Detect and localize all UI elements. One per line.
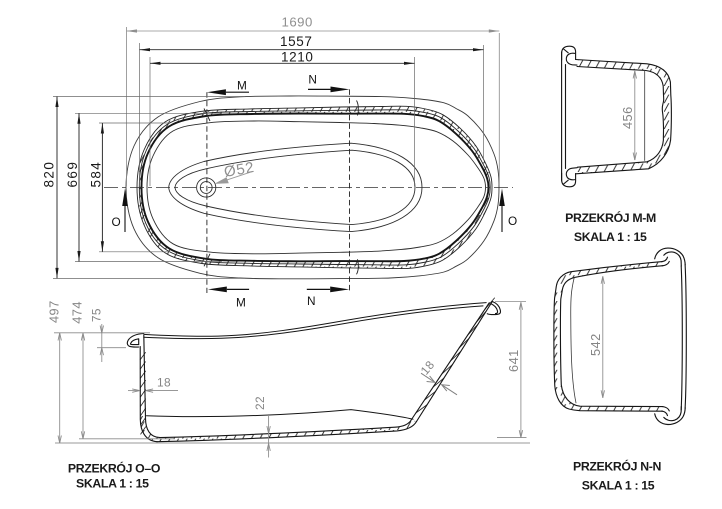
svg-text:641: 641 <box>506 349 521 372</box>
svg-text:O: O <box>112 215 121 229</box>
svg-text:1690: 1690 <box>282 15 313 30</box>
svg-text:75: 75 <box>89 308 103 322</box>
svg-text:474: 474 <box>69 301 84 324</box>
svg-text:O: O <box>508 214 517 228</box>
svg-text:1557: 1557 <box>280 34 312 49</box>
svg-text:PRZEKRÓJ N-N: PRZEKRÓJ N-N <box>573 458 662 473</box>
svg-text:M: M <box>237 79 247 93</box>
svg-text:SKALA 1 : 15: SKALA 1 : 15 <box>574 230 647 244</box>
svg-text:N: N <box>307 294 316 308</box>
svg-text:M: M <box>236 296 246 310</box>
svg-text:456: 456 <box>620 106 635 129</box>
svg-text:669: 669 <box>65 161 80 188</box>
svg-text:22: 22 <box>253 396 267 410</box>
svg-text:PRZEKRÓJ M-M: PRZEKRÓJ M-M <box>565 210 656 225</box>
svg-text:SKALA 1 : 15: SKALA 1 : 15 <box>582 478 655 492</box>
svg-text:PRZEKRÓJ O–O: PRZEKRÓJ O–O <box>68 461 161 476</box>
svg-text:820: 820 <box>42 161 57 188</box>
svg-text:497: 497 <box>47 300 62 323</box>
svg-text:542: 542 <box>588 333 603 356</box>
svg-text:SKALA 1 : 15: SKALA 1 : 15 <box>76 477 149 491</box>
svg-text:N: N <box>308 72 317 86</box>
svg-text:584: 584 <box>88 161 103 188</box>
svg-text:1210: 1210 <box>281 50 313 65</box>
svg-text:18: 18 <box>157 376 171 390</box>
